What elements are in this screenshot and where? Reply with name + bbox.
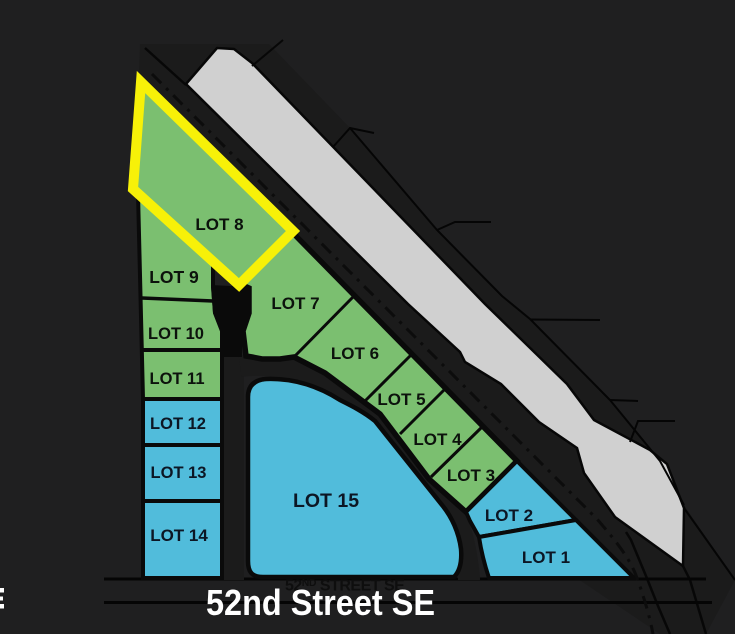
svg-text:LOT 11: LOT 11 <box>149 370 204 388</box>
svg-text:LOT 3: LOT 3 <box>447 466 495 485</box>
svg-text:LOT 8: LOT 8 <box>195 215 243 234</box>
svg-text:LOT 4: LOT 4 <box>413 430 462 449</box>
svg-text:LOT 10: LOT 10 <box>148 325 204 343</box>
svg-text:LOT 9: LOT 9 <box>149 267 199 287</box>
svg-text:LOT 13: LOT 13 <box>151 464 207 482</box>
svg-text:LOT 12: LOT 12 <box>150 415 206 433</box>
svg-text:LOT 7: LOT 7 <box>271 294 319 313</box>
svg-text:LOT 6: LOT 6 <box>331 344 379 363</box>
svg-text:LOT 1: LOT 1 <box>522 548 570 567</box>
svg-text:LOT 14: LOT 14 <box>150 526 208 545</box>
svg-text:LOT 2: LOT 2 <box>485 506 533 525</box>
svg-text:52nd Street SE: 52nd Street SE <box>206 582 435 623</box>
svg-text:LOT 5: LOT 5 <box>377 390 425 409</box>
svg-text:LOT 15: LOT 15 <box>293 490 359 512</box>
